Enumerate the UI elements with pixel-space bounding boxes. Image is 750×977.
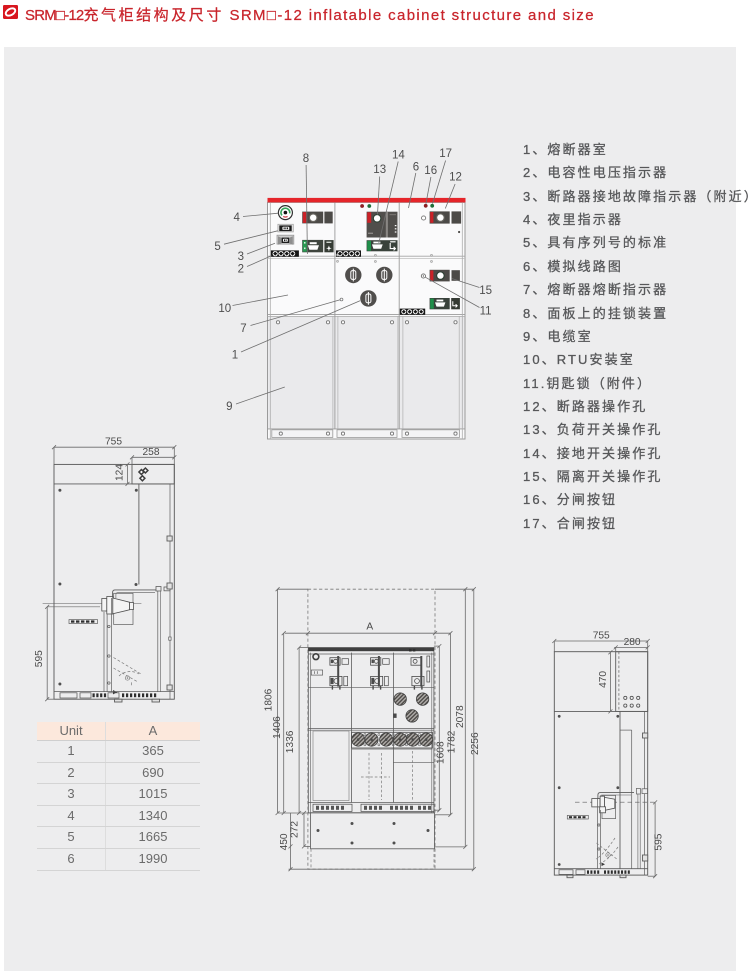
- svg-text:9: 9: [226, 401, 232, 413]
- svg-text:4: 4: [233, 212, 240, 224]
- svg-text:16: 16: [424, 165, 437, 177]
- svg-text:755: 755: [105, 437, 122, 448]
- svg-text:2078: 2078: [455, 705, 466, 728]
- svg-text:5: 5: [214, 241, 220, 253]
- svg-text:1782: 1782: [447, 730, 458, 753]
- svg-text:7: 7: [240, 323, 246, 335]
- svg-text:10: 10: [218, 303, 231, 315]
- svg-text:755: 755: [593, 630, 610, 641]
- svg-text:595: 595: [654, 833, 665, 850]
- svg-text:14: 14: [392, 150, 405, 162]
- svg-text:272: 272: [289, 821, 300, 838]
- svg-text:1806: 1806: [263, 688, 274, 711]
- svg-text:8: 8: [303, 153, 309, 165]
- svg-text:2: 2: [238, 263, 244, 275]
- svg-text:124: 124: [115, 464, 126, 481]
- svg-text:3: 3: [238, 251, 244, 263]
- svg-text:1: 1: [232, 349, 238, 361]
- svg-text:A: A: [366, 622, 373, 633]
- svg-text:17: 17: [439, 148, 452, 160]
- svg-text:13: 13: [373, 164, 386, 176]
- svg-text:2256: 2256: [470, 732, 481, 755]
- svg-text:258: 258: [143, 447, 160, 458]
- svg-text:6: 6: [413, 161, 419, 173]
- svg-text:1608: 1608: [436, 741, 447, 764]
- svg-text:15: 15: [479, 285, 492, 297]
- svg-text:470: 470: [598, 671, 609, 688]
- svg-text:450: 450: [279, 833, 290, 850]
- svg-text:595: 595: [34, 650, 45, 667]
- svg-text:1406: 1406: [272, 716, 283, 739]
- svg-text:11: 11: [480, 305, 492, 317]
- svg-text:280: 280: [624, 637, 641, 648]
- svg-text:1336: 1336: [285, 730, 296, 753]
- svg-text:12: 12: [449, 172, 462, 184]
